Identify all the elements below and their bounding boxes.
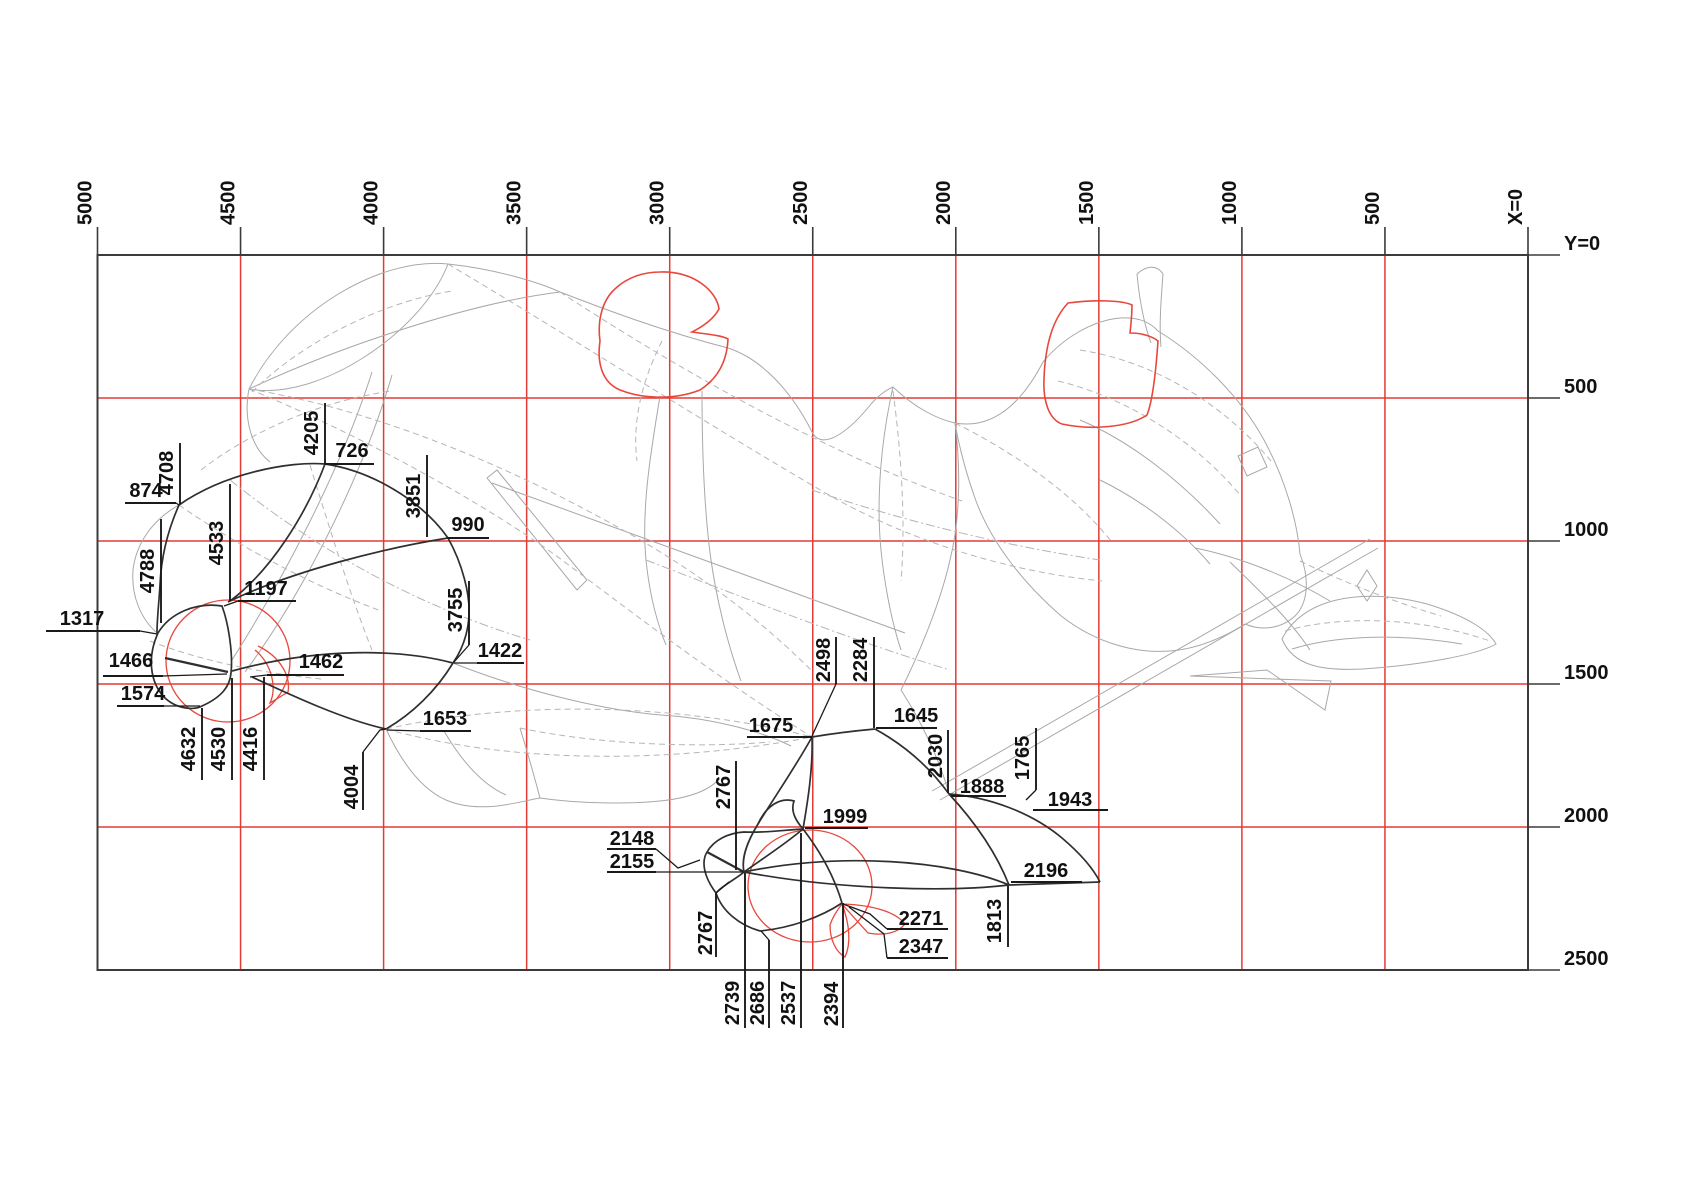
- dimension-label: 1574: [121, 683, 166, 705]
- y-axis-tick-label: 1500: [1564, 662, 1609, 684]
- dimension-label: 2767: [713, 765, 735, 810]
- dimension-leader: [812, 684, 836, 736]
- x-axis-tick-label: 500: [1362, 192, 1384, 225]
- dimension-label: 2030: [925, 734, 947, 779]
- x-axis-tick-label: 2500: [790, 181, 812, 226]
- dimension-label: 4205: [301, 411, 323, 456]
- y-axis-tick-label: 1000: [1564, 519, 1609, 541]
- dimension-label: 2686: [747, 981, 769, 1026]
- x-axis-tick-label: 5000: [75, 181, 97, 226]
- red-grid-cell: [1099, 541, 1242, 684]
- x-axis-tick-label: 4000: [361, 181, 383, 226]
- dimension-label: 1466: [109, 650, 154, 672]
- dimension-label: 1645: [894, 705, 939, 727]
- dimension-leader: [716, 882, 729, 893]
- dimension-label: 1197: [244, 578, 287, 600]
- dimension-label: 1888: [960, 776, 1005, 798]
- red-grid-cell: [1385, 541, 1528, 684]
- dimension-label: 2394: [821, 981, 843, 1026]
- red-grid-cell: [1385, 255, 1528, 398]
- dimension-leaders: [46, 403, 1108, 1028]
- red-grid-cell: [670, 684, 813, 827]
- dimension-label: 2271: [899, 908, 944, 930]
- dimension-label: 4632: [178, 727, 200, 772]
- y-axis-tick-label: Y=0: [1564, 233, 1600, 255]
- red-grid-cell: [1242, 684, 1385, 827]
- dimension-label: 1675: [749, 715, 794, 737]
- dimension-label: 1943: [1048, 789, 1093, 811]
- dimension-label: 2537: [778, 981, 800, 1026]
- x-axis-tick-label: 1500: [1076, 181, 1098, 226]
- dimension-label: 2498: [813, 638, 835, 683]
- dimension-leader: [1026, 790, 1036, 800]
- red-grid-cell: [956, 398, 1099, 541]
- dimension-label: 4533: [206, 521, 228, 566]
- dimension-leader: [761, 931, 769, 940]
- dimension-label: 1765: [1012, 736, 1034, 781]
- axis-labels: 500045004000350030002500200015001000500X…: [75, 181, 1609, 971]
- red-grid-cell: [527, 255, 670, 398]
- dimension-label: 2739: [722, 981, 744, 1026]
- drawing-page: CAD wireframe dimension drawing of recli…: [0, 0, 1684, 1191]
- dimension-leader: [140, 631, 157, 634]
- dimension-drawing-canvas: 500045004000350030002500200015001000500X…: [0, 0, 1684, 1191]
- red-grid-cell: [813, 255, 956, 398]
- dimension-label: 2155: [610, 851, 655, 873]
- dimension-label: 990: [451, 514, 484, 536]
- dimension-label: 2767: [695, 911, 717, 956]
- red-grid-cell: [670, 398, 813, 541]
- x-axis-tick-label: 2000: [933, 181, 955, 226]
- dimension-label: 3755: [445, 588, 467, 633]
- dimension-leader: [176, 503, 179, 505]
- red-grid-cell: [1242, 398, 1385, 541]
- y-axis-tick-label: 2000: [1564, 805, 1609, 827]
- dimension-leader: [250, 675, 267, 677]
- dimension-label: 726: [335, 440, 368, 462]
- red-grid-cell: [527, 541, 670, 684]
- dimension-label: 1653: [423, 708, 468, 730]
- dimension-label: 3851: [403, 474, 425, 519]
- red-petal-rear-paw-2: [830, 904, 849, 957]
- dimension-leader: [656, 849, 700, 868]
- x-axis-tick-label: X=0: [1505, 189, 1527, 225]
- y-axis-tick-label: 2500: [1564, 948, 1609, 970]
- dimension-label: 1462: [299, 651, 344, 673]
- dimension-leader: [224, 601, 238, 606]
- red-grid-cell: [1385, 827, 1528, 970]
- red-grid-cell: [1099, 255, 1242, 398]
- x-axis-tick-label: 3500: [504, 181, 526, 226]
- x-axis-tick-label: 4500: [218, 181, 240, 226]
- dimension-label: 2196: [1024, 860, 1069, 882]
- red-notched-circle-top: [599, 272, 728, 397]
- x-axis-tick-label: 1000: [1219, 181, 1241, 226]
- red-grid-cell: [241, 255, 384, 398]
- y-axis-tick-label: 500: [1564, 376, 1597, 398]
- dimension-label: 1422: [478, 640, 523, 662]
- dimension-label: 2148: [610, 828, 655, 850]
- dimension-label: 1317: [60, 608, 105, 630]
- dimension-label: 874: [129, 480, 163, 502]
- red-grid-cell: [1099, 827, 1242, 970]
- x-axis-tick-label: 3000: [647, 181, 669, 226]
- dimension-label: 4530: [208, 727, 230, 772]
- axis-ticks: [98, 227, 1561, 970]
- dimension-leader: [363, 729, 386, 752]
- red-grid-cell: [241, 827, 384, 970]
- dimension-label: 4788: [137, 549, 159, 594]
- sculpture-wireframe: [133, 263, 1496, 806]
- dimension-label: 2284: [850, 637, 872, 682]
- dimension-label: 1813: [984, 899, 1006, 944]
- dimension-leader: [163, 674, 227, 676]
- dimension-labels: 4205726470887438519904533478811973755131…: [60, 411, 1093, 1027]
- red-grid-cell: [384, 684, 527, 827]
- dimension-label: 2347: [899, 936, 944, 958]
- dimension-label: 1999: [823, 806, 868, 828]
- dimension-label: 4416: [240, 727, 262, 772]
- dimension-label: 4004: [341, 764, 363, 809]
- dimension-leader: [387, 730, 420, 731]
